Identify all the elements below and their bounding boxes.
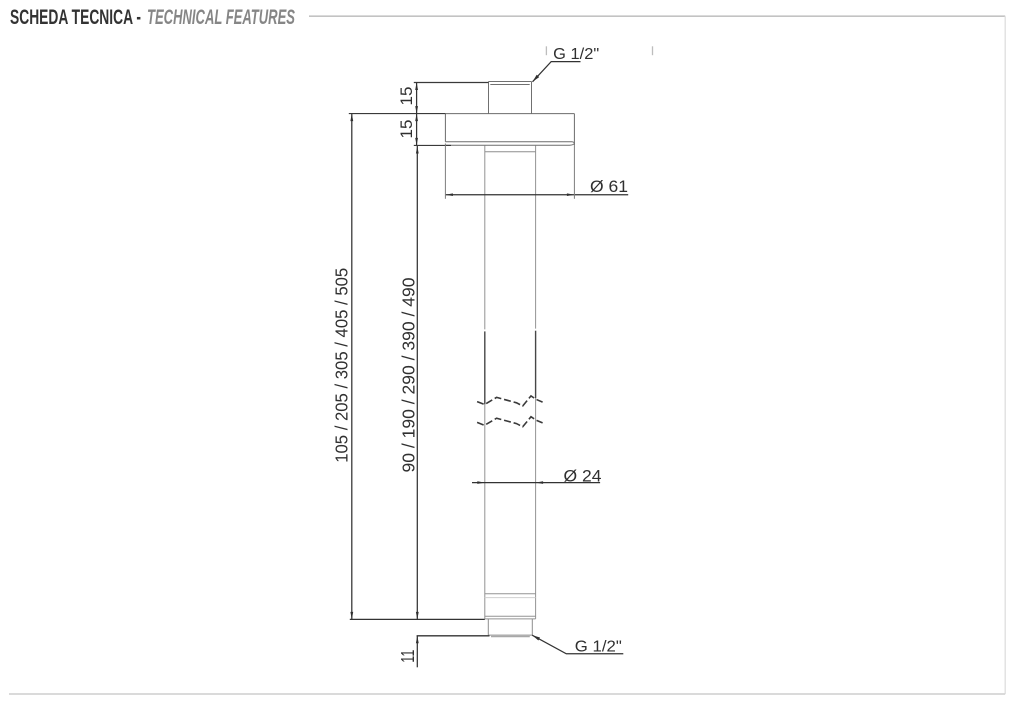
svg-text:Ø 61: Ø 61 bbox=[590, 177, 628, 196]
svg-text:15: 15 bbox=[397, 87, 416, 106]
svg-text:105 / 205 / 305 / 405 / 505: 105 / 205 / 305 / 405 / 505 bbox=[332, 268, 352, 463]
svg-text:Ø 24: Ø 24 bbox=[564, 466, 602, 485]
svg-text:G 1/2": G 1/2" bbox=[575, 639, 622, 656]
svg-text:90 / 190 / 290 / 390 / 490: 90 / 190 / 290 / 390 / 490 bbox=[399, 277, 419, 472]
svg-text:TECHNICAL FEATURES: TECHNICAL FEATURES bbox=[147, 6, 295, 29]
svg-text:11: 11 bbox=[398, 650, 418, 663]
svg-text:SCHEDA TECNICA -: SCHEDA TECNICA - bbox=[10, 6, 141, 29]
svg-text:15: 15 bbox=[397, 120, 416, 139]
svg-text:G 1/2": G 1/2" bbox=[553, 46, 599, 63]
